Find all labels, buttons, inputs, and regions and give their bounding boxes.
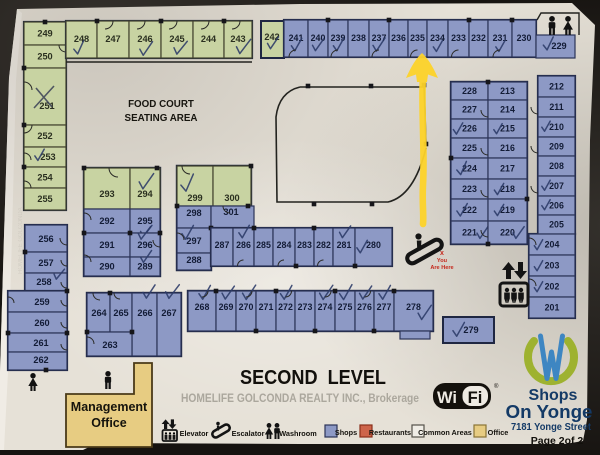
- svg-text:269: 269: [219, 302, 234, 312]
- svg-text:290: 290: [99, 262, 114, 272]
- svg-text:You: You: [437, 258, 448, 264]
- svg-text:254: 254: [37, 173, 53, 183]
- svg-text:284: 284: [277, 240, 292, 250]
- svg-text:264: 264: [91, 308, 107, 318]
- svg-text:Shops: Shops: [335, 428, 357, 437]
- svg-text:7181 Yonge Street: 7181 Yonge Street: [511, 422, 592, 433]
- svg-text:221: 221: [462, 228, 477, 238]
- svg-text:217: 217: [500, 164, 515, 174]
- svg-text:251: 251: [39, 101, 54, 111]
- svg-text:292: 292: [99, 216, 114, 226]
- svg-text:205: 205: [549, 220, 564, 230]
- svg-text:226: 226: [462, 124, 477, 134]
- svg-text:261: 261: [33, 338, 48, 348]
- svg-text:270: 270: [239, 302, 254, 312]
- svg-text:256: 256: [38, 234, 53, 244]
- svg-text:268: 268: [195, 302, 210, 312]
- svg-text:281: 281: [337, 240, 352, 250]
- svg-text:202: 202: [545, 282, 560, 292]
- svg-text:247: 247: [105, 34, 120, 44]
- svg-text:233: 233: [451, 33, 466, 43]
- svg-text:HOMELIFE GOLCONDA REALTY INC.,: HOMELIFE GOLCONDA REALTY INC., Brokerage: [181, 393, 419, 405]
- svg-text:Management: Management: [71, 400, 148, 414]
- svg-text:259: 259: [34, 297, 49, 307]
- svg-text:294: 294: [137, 189, 153, 199]
- svg-text:296: 296: [137, 240, 152, 250]
- svg-text:279: 279: [463, 325, 478, 335]
- svg-text:215: 215: [500, 124, 515, 134]
- svg-text:Fi: Fi: [468, 389, 483, 407]
- svg-text:201: 201: [545, 303, 560, 313]
- svg-text:293: 293: [99, 189, 114, 199]
- svg-text:245: 245: [169, 34, 184, 44]
- svg-text:260: 260: [34, 318, 49, 328]
- svg-text:285: 285: [256, 240, 271, 250]
- svg-text:278: 278: [406, 302, 421, 312]
- svg-text:Elevator: Elevator: [180, 429, 209, 438]
- svg-text:211: 211: [549, 102, 563, 112]
- svg-text:266: 266: [137, 308, 152, 318]
- svg-text:225: 225: [462, 143, 477, 153]
- svg-text:288: 288: [186, 255, 201, 265]
- svg-text:Are Here: Are Here: [430, 265, 453, 271]
- svg-text:277: 277: [377, 302, 392, 312]
- svg-text:212: 212: [549, 82, 564, 92]
- svg-text:208: 208: [549, 161, 564, 171]
- svg-text:®: ®: [494, 383, 499, 390]
- svg-text:223: 223: [462, 184, 477, 194]
- svg-text:246: 246: [137, 34, 152, 44]
- svg-text:240: 240: [311, 33, 326, 43]
- svg-text:291: 291: [99, 240, 114, 250]
- svg-text:228: 228: [462, 86, 477, 96]
- svg-text:209: 209: [549, 142, 564, 152]
- svg-text:252: 252: [37, 131, 52, 141]
- svg-text:299: 299: [187, 193, 202, 203]
- svg-text:216: 216: [500, 143, 515, 153]
- svg-text:243: 243: [230, 34, 245, 44]
- svg-text:250: 250: [37, 52, 52, 62]
- svg-text:230: 230: [517, 33, 532, 43]
- svg-text:Office: Office: [91, 416, 126, 430]
- svg-text:274: 274: [318, 302, 333, 312]
- svg-text:265: 265: [113, 308, 128, 318]
- svg-text:On Yonge: On Yonge: [506, 402, 593, 422]
- svg-text:229: 229: [551, 41, 566, 51]
- svg-text:286: 286: [236, 240, 251, 250]
- svg-text:287: 287: [215, 240, 230, 250]
- svg-text:273: 273: [298, 302, 313, 312]
- svg-text:257: 257: [38, 258, 53, 268]
- svg-text:Escalator: Escalator: [232, 429, 265, 438]
- svg-text:Common Areas: Common Areas: [418, 428, 472, 437]
- svg-text:214: 214: [500, 105, 515, 115]
- svg-text:249: 249: [37, 29, 52, 39]
- svg-text:SECOND LEVEL: SECOND LEVEL: [240, 366, 386, 389]
- svg-text:275: 275: [338, 302, 353, 312]
- svg-text:235: 235: [410, 33, 425, 43]
- svg-text:206: 206: [549, 201, 564, 211]
- svg-text:Office: Office: [488, 428, 509, 437]
- svg-text:297: 297: [186, 236, 201, 246]
- svg-text:HOMELIFE GOLCONDA: HOMELIFE GOLCONDA: [18, 207, 24, 274]
- svg-text:300: 300: [224, 193, 239, 203]
- svg-text:276: 276: [357, 302, 372, 312]
- svg-text:210: 210: [549, 122, 564, 132]
- svg-text:267: 267: [161, 308, 176, 318]
- svg-text:280: 280: [366, 240, 381, 250]
- svg-text:282: 282: [316, 240, 331, 250]
- svg-text:203: 203: [545, 261, 560, 271]
- svg-text:255: 255: [37, 194, 52, 204]
- svg-text:295: 295: [137, 216, 152, 226]
- svg-text:244: 244: [201, 34, 217, 44]
- svg-text:263: 263: [102, 340, 117, 350]
- svg-text:289: 289: [137, 262, 152, 272]
- svg-text:271: 271: [259, 302, 274, 312]
- svg-text:272: 272: [278, 302, 293, 312]
- svg-text:283: 283: [297, 240, 312, 250]
- svg-text:298: 298: [186, 208, 201, 218]
- svg-text:227: 227: [462, 105, 477, 115]
- svg-text:Washroom: Washroom: [279, 429, 317, 438]
- svg-text:204: 204: [545, 240, 560, 250]
- svg-text:x: x: [440, 250, 444, 257]
- svg-text:213: 213: [500, 86, 515, 96]
- svg-text:207: 207: [549, 181, 564, 191]
- svg-text:Restaurants: Restaurants: [369, 428, 411, 437]
- svg-text:242: 242: [264, 32, 279, 42]
- svg-text:Page 2of 2: Page 2of 2: [531, 435, 584, 447]
- svg-text:FOOD COURT: FOOD COURT: [128, 99, 194, 110]
- svg-text:SEATING AREA: SEATING AREA: [125, 113, 198, 124]
- svg-text:238: 238: [351, 33, 366, 43]
- svg-text:232: 232: [471, 33, 486, 43]
- svg-text:262: 262: [33, 355, 48, 365]
- svg-text:258: 258: [36, 277, 51, 287]
- svg-text:Wi: Wi: [437, 389, 457, 407]
- svg-text:236: 236: [391, 33, 406, 43]
- svg-text:248: 248: [74, 34, 89, 44]
